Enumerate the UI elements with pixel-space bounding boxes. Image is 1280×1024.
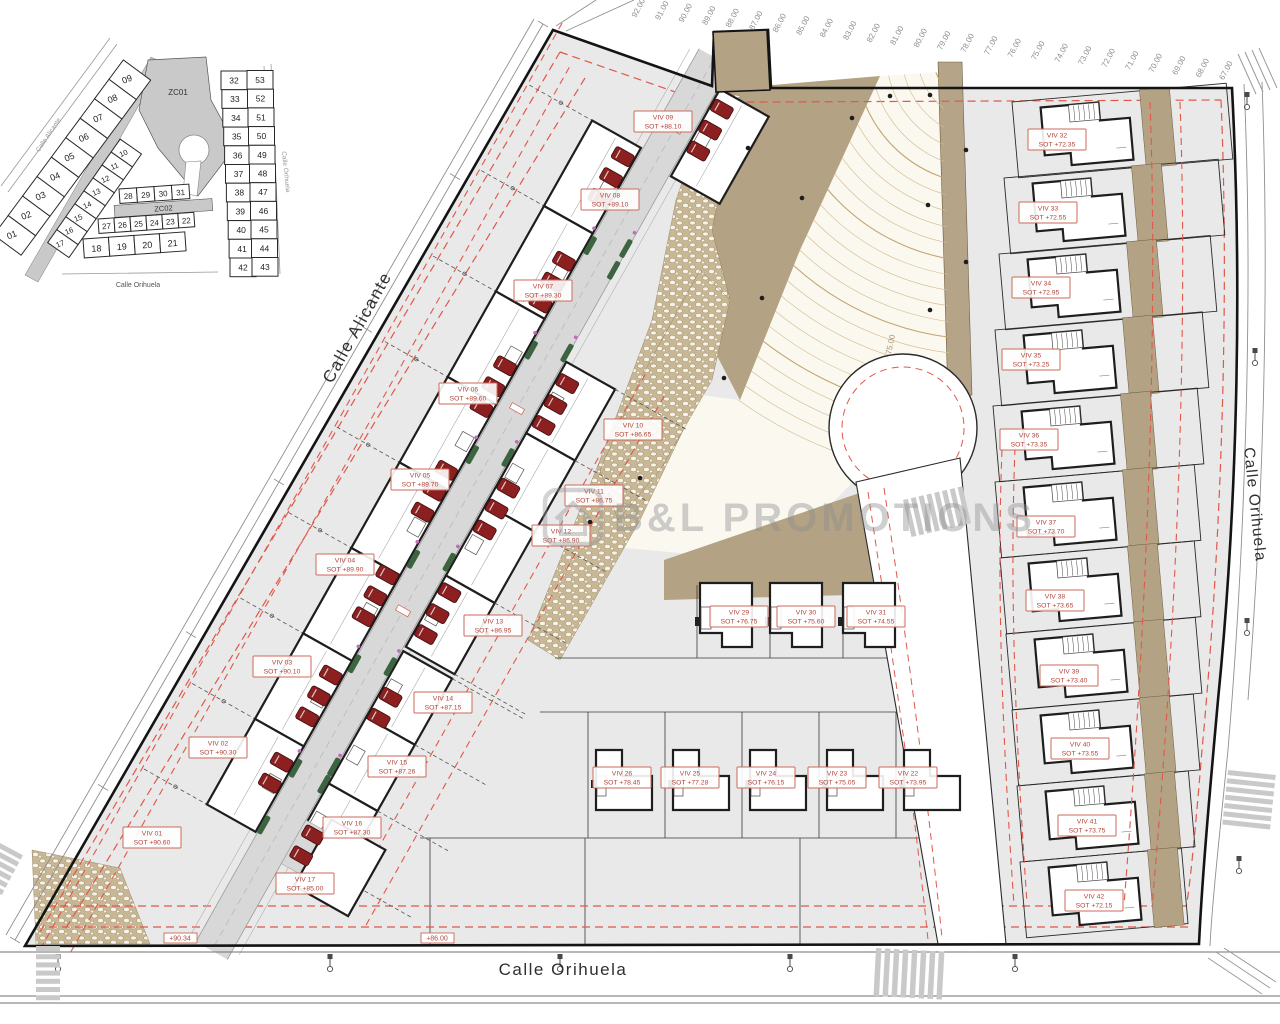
minimap-street-label: Calle Orihuela <box>280 151 291 193</box>
viv-label-name: VIV 42 <box>1084 894 1105 901</box>
crosswalk <box>36 946 60 951</box>
minimap-plot-number: 23 <box>166 217 176 227</box>
viv-label-sot: SOT +72.35 <box>1039 142 1076 149</box>
street-lamp-icon <box>1013 954 1018 959</box>
minimap-plot-number: 44 <box>260 243 270 253</box>
tree-icon <box>964 148 969 153</box>
viv-label-sot: SOT +72.55 <box>1030 215 1067 222</box>
tree-icon <box>800 196 805 201</box>
viv-label-name: VIV 07 <box>533 284 554 291</box>
minimap-plot-number: 18 <box>91 243 102 254</box>
viv-label: VIV 05SOT +89.70 <box>391 469 449 490</box>
minimap-plot-number: 36 <box>233 150 243 160</box>
rear-yard-tan <box>1133 619 1170 699</box>
site-plan-canvas: 92.0091.0090.0089.0088.0087.0086.0085.00… <box>0 0 1280 1024</box>
crosswalk-stripe <box>1223 811 1271 821</box>
contour-elevation-label: 81.00 <box>888 24 906 46</box>
tree-icon <box>888 94 893 99</box>
viv-label-sot: SOT +72.95 <box>1023 290 1060 297</box>
minimap-street-label: Calle Orihuela <box>116 282 160 289</box>
minimap-plot-number: 27 <box>102 222 112 232</box>
corner-hatch-bottomright <box>1208 948 1276 994</box>
contour-elevation-label: 83.00 <box>841 19 859 41</box>
north-access <box>713 30 770 92</box>
viv-label: VIV 14SOT +87.15 <box>414 692 472 713</box>
minimap-plot-number: 37 <box>234 169 244 179</box>
minimap-plot-number: 41 <box>237 244 247 254</box>
street-lamp-icon <box>788 954 793 959</box>
viv-label-sot: SOT +89.60 <box>450 396 487 403</box>
viv-label-name: VIV 09 <box>653 115 674 122</box>
viv-label-sot: SOT +89.30 <box>525 293 562 300</box>
street-lamp-icon <box>787 966 792 971</box>
viv-label-sot: SOT +86.75 <box>576 498 613 505</box>
viv-label-name: VIV 29 <box>729 610 750 617</box>
rear-yard-tan <box>1127 543 1164 623</box>
crosswalk-stripe <box>909 950 917 998</box>
viv-label: VIV 24SOT +76.15 <box>737 767 795 788</box>
viv-label: VIV 01SOT +90.60 <box>123 827 181 848</box>
viv-label-sot: SOT +87.30 <box>334 830 371 837</box>
viv-label: VIV 02SOT +90.30 <box>189 737 247 758</box>
minimap-plot-number: 31 <box>176 188 186 198</box>
viv-label-name: VIV 13 <box>483 619 504 626</box>
viv-label-name: VIV 30 <box>796 610 817 617</box>
crosswalk <box>873 948 944 1000</box>
viv-label-sot: SOT +73.65 <box>1037 603 1074 610</box>
minimap-plot-number: 42 <box>238 263 248 273</box>
entrance-step <box>838 617 843 626</box>
street-lamp-icon <box>1245 618 1250 623</box>
minimap-mid-row2: 272625242322 <box>98 212 195 233</box>
viv-label: VIV 15SOT +87.26 <box>368 756 426 777</box>
site-plan-drawing: 92.0091.0090.0089.0088.0087.0086.0085.00… <box>0 0 1280 1024</box>
viv-label: VIV 42SOT +72.15 <box>1065 890 1123 911</box>
minimap-plot-number: 22 <box>182 216 192 226</box>
rear-yard-tan <box>1131 163 1168 243</box>
viv-label-sot: SOT +75.05 <box>819 780 856 787</box>
viv-label: VIV 31SOT +74.55 <box>847 606 905 627</box>
tree-icon <box>928 93 933 98</box>
contour-elevation-label: 92.00 <box>630 0 648 19</box>
minimap-plot-number: 49 <box>257 150 267 160</box>
viv-label-name: VIV 10 <box>623 423 644 430</box>
viv-label-name: VIV 40 <box>1070 742 1091 749</box>
crosswalk-stripe <box>1227 770 1275 780</box>
viv-label-name: VIV 01 <box>142 831 163 838</box>
viv-label-sot: SOT +73.55 <box>1062 751 1099 758</box>
viv-label: VIV 10SOT +86.65 <box>604 419 662 440</box>
minimap-plot-number: 46 <box>259 206 269 216</box>
viv-label: VIV 16SOT +87.30 <box>323 817 381 838</box>
viv-label-name: VIV 37 <box>1036 520 1057 527</box>
minimap-plot-number: 19 <box>116 241 127 252</box>
viv-label-name: VIV 33 <box>1038 206 1059 213</box>
minimap-plot-number: 34 <box>231 113 241 123</box>
road-elevation-text: +86.00 <box>426 936 448 943</box>
minimap-plot-number: 28 <box>123 192 133 202</box>
viv-label: VIV 17SOT +85.00 <box>276 873 334 894</box>
minimap-plot-number: 45 <box>259 225 269 235</box>
road-tick <box>10 937 20 943</box>
minimap-plot-number: 38 <box>235 188 245 198</box>
viv-label-name: VIV 35 <box>1021 353 1042 360</box>
contour-elevation-label: 75.00 <box>1029 39 1047 61</box>
contour-elevation-label: 84.00 <box>818 17 836 39</box>
viv-label: VIV 22SOT +73.95 <box>879 767 937 788</box>
rear-yard-tan <box>1122 467 1159 547</box>
viv-label: VIV 38SOT +73.65 <box>1026 590 1084 611</box>
viv-label: VIV 04SOT +89.90 <box>316 554 374 575</box>
crosswalk-stripe <box>1227 778 1275 788</box>
minimap-plot-number: 50 <box>257 131 267 141</box>
viv-label-sot: SOT +72.15 <box>1076 903 1113 910</box>
crosswalk <box>36 962 60 967</box>
minimap-plot-number: 48 <box>258 169 268 179</box>
viv-label-name: VIV 17 <box>295 877 316 884</box>
viv-label-name: VIV 14 <box>433 696 454 703</box>
crosswalk-stripe <box>900 949 908 997</box>
crosswalk <box>0 843 23 895</box>
contour-elevation-label: 90.00 <box>677 2 695 24</box>
viv-label: VIV 41SOT +73.75 <box>1058 815 1116 836</box>
street-label-orihuela-right: Calle Orihuela <box>1240 446 1269 562</box>
minimap-plot-number: 53 <box>255 75 265 85</box>
viv-label-sot: SOT +89.90 <box>327 567 364 574</box>
viv-label: VIV 03SOT +90.10 <box>253 656 311 677</box>
road-tick <box>98 784 108 790</box>
viv-label-sot: SOT +89.70 <box>402 482 439 489</box>
street-label-orihuela-bottom: Calle Orihuela <box>499 960 628 979</box>
minimap-plot-number: 26 <box>118 220 128 230</box>
contour-elevation-label: 71.00 <box>1123 49 1141 71</box>
contour-elevation-label: 91.00 <box>653 0 671 21</box>
street-lamp-icon <box>327 966 332 971</box>
minimap-plot-number: 35 <box>232 132 242 142</box>
contour-elevation-label: 88.00 <box>724 7 742 29</box>
viv-label: VIV 29SOT +76.75 <box>710 606 768 627</box>
crosswalk-stripe <box>873 948 881 996</box>
viv-label: VIV 06SOT +89.60 <box>439 383 497 404</box>
viv-label-name: VIV 31 <box>866 610 887 617</box>
viv-label-sot: SOT +73.35 <box>1011 442 1048 449</box>
street-lamp-icon <box>1252 360 1257 365</box>
street-lamp-icon <box>1253 348 1258 353</box>
minimap-plot-number: 47 <box>258 187 268 197</box>
viv-label-sot: SOT +76.75 <box>721 619 758 626</box>
viv-label-name: VIV 36 <box>1019 433 1040 440</box>
viv-label: VIV 36SOT +73.35 <box>1000 429 1058 450</box>
minimap-plot-number: 51 <box>256 112 266 122</box>
viv-label: VIV 40SOT +73.55 <box>1051 738 1109 759</box>
contour-elevation-label: 85.00 <box>794 14 812 36</box>
viv-label: VIV 25SOT +77.28 <box>661 767 719 788</box>
minimap-plot-number: 32 <box>229 76 239 86</box>
minimap-plot-number: 40 <box>236 225 246 235</box>
viv-label-sot: SOT +89.10 <box>592 202 629 209</box>
key-plan-minimap: ZC01090807060504030201101112131415161728… <box>0 38 291 289</box>
tree-icon <box>928 308 933 313</box>
watermark: B&L PROMOTIONS <box>545 490 1036 544</box>
road-elevation-text: +90.34 <box>169 936 191 943</box>
tree-icon <box>760 296 765 301</box>
viv-label-sot: SOT +90.30 <box>200 750 237 757</box>
street-lamp-icon <box>1236 868 1241 873</box>
road-elevation-label: +86.00 <box>421 933 454 943</box>
viv-label-sot: SOT +88.10 <box>645 124 682 131</box>
tree-icon <box>722 376 727 381</box>
minimap-plot-number: 25 <box>134 219 144 229</box>
contour-elevation-label: 79.00 <box>935 29 953 51</box>
crosswalk <box>1222 770 1275 830</box>
viv-label-name: VIV 03 <box>272 660 293 667</box>
contour-elevation-label: 86.00 <box>771 12 789 34</box>
viv-label: VIV 13SOT +86.95 <box>464 615 522 636</box>
minimap-plot-number: 43 <box>260 262 270 272</box>
crosswalk-stripe <box>936 951 944 999</box>
viv-label-name: VIV 24 <box>756 771 777 778</box>
tree-icon <box>746 146 751 151</box>
viv-label-sot: SOT +77.28 <box>672 780 709 787</box>
crosswalk-stripe <box>1226 787 1274 797</box>
viv-label-sot: SOT +86.65 <box>615 432 652 439</box>
crosswalk-stripe <box>1224 803 1272 813</box>
viv-label-sot: SOT +90.10 <box>264 669 301 676</box>
crosswalk <box>36 987 60 992</box>
viv-label-name: VIV 32 <box>1047 133 1068 140</box>
tree-icon <box>638 476 643 481</box>
road-elevation-label: +90.34 <box>164 933 197 943</box>
contour-elevation-label: 78.00 <box>959 32 977 54</box>
watermark-text: B&L PROMOTIONS <box>614 496 1036 540</box>
minimap-plot-number: 33 <box>230 94 240 104</box>
viv-label-sot: SOT +90.60 <box>134 840 171 847</box>
viv-label-name: VIV 41 <box>1077 819 1098 826</box>
street-lamp-icon <box>328 954 333 959</box>
contour-elevation-label: 67.00 <box>1217 59 1235 81</box>
tree-icon <box>850 116 855 121</box>
street-lamp-icon <box>1012 966 1017 971</box>
viv-label-name: VIV 08 <box>600 193 621 200</box>
entrance-step <box>695 617 700 626</box>
viv-label-name: VIV 34 <box>1031 281 1052 288</box>
crosswalk-stripe <box>1225 795 1273 805</box>
viv-label: VIV 07SOT +89.30 <box>514 280 572 301</box>
minimap-plot-number: 20 <box>142 240 153 251</box>
viv-label-sot: SOT +87.26 <box>379 769 416 776</box>
contour-elevation-label: 87.00 <box>747 9 765 31</box>
road-tick <box>538 21 548 27</box>
rear-yard-tan <box>1147 847 1184 927</box>
rear-yard-tan <box>1126 239 1163 319</box>
contour-elevation-label: 69.00 <box>1170 54 1188 76</box>
minimap-plot-number: 24 <box>150 218 160 228</box>
viv-label-sot: SOT +76.15 <box>748 780 785 787</box>
viv-label-name: VIV 02 <box>208 741 229 748</box>
viv-label-sot: SOT +85.00 <box>287 886 324 893</box>
contour-elevation-label: 74.00 <box>1053 42 1071 64</box>
minimap-plot-number: 52 <box>256 94 266 104</box>
viv-label-name: VIV 04 <box>335 558 356 565</box>
crosswalk-stripe <box>918 950 926 998</box>
street-lamp-icon <box>1245 92 1250 97</box>
rear-yard-tan <box>1139 695 1176 775</box>
contour-elevation-label: 80.00 <box>912 27 930 49</box>
viv-label-sot: SOT +86.95 <box>475 628 512 635</box>
road-tick <box>450 174 460 180</box>
viv-label: VIV 30SOT +75.60 <box>777 606 835 627</box>
tree-icon <box>588 520 593 525</box>
viv-label-name: VIV 06 <box>458 387 479 394</box>
contour-elevation-label: 72.00 <box>1100 47 1118 69</box>
viv-label-name: VIV 39 <box>1059 669 1080 676</box>
rear-yard-tan <box>1139 87 1176 167</box>
viv-label: VIV 33SOT +72.55 <box>1019 202 1077 223</box>
contour-elevation-label: 70.00 <box>1147 52 1165 74</box>
viv-label: VIV 23SOT +75.05 <box>808 767 866 788</box>
road-tick <box>186 632 196 638</box>
crosswalk-stripe <box>927 951 935 999</box>
crosswalk-stripe <box>1222 820 1270 830</box>
viv-label-name: VIV 26 <box>612 771 633 778</box>
contour-elevation-label: 77.00 <box>982 34 1000 56</box>
crosswalk-stripe <box>882 948 890 996</box>
minimap-plot-number: 21 <box>167 238 178 249</box>
viv-label-name: VIV 05 <box>410 473 431 480</box>
crosswalk <box>36 995 60 1000</box>
viv-label-name: VIV 23 <box>827 771 848 778</box>
rear-yard-tan <box>1122 315 1159 395</box>
viv-label-sot: SOT +73.40 <box>1051 678 1088 685</box>
viv-label: VIV 34SOT +72.95 <box>1012 277 1070 298</box>
viv-label: VIV 39SOT +73.40 <box>1040 665 1098 686</box>
viv-label-sot: SOT +74.55 <box>858 619 895 626</box>
contour-elevation-label: 82.00 <box>865 22 883 44</box>
minimap-plot-number: 30 <box>158 189 168 199</box>
rear-yard-tan <box>1120 391 1157 471</box>
crosswalk-stripe <box>891 949 899 997</box>
contour-elevation-label: 68.00 <box>1194 57 1212 79</box>
viv-label-sot: SOT +87.15 <box>425 705 462 712</box>
road-tick <box>274 479 284 485</box>
viv-label: VIV 08SOT +89.10 <box>581 189 639 210</box>
crosswalk <box>36 971 60 976</box>
viv-label-name: VIV 15 <box>387 760 408 767</box>
viv-label-sot: SOT +73.25 <box>1013 362 1050 369</box>
viv-label-name: VIV 16 <box>342 821 363 828</box>
viv-label-sot: SOT +75.60 <box>788 619 825 626</box>
street-lamp-icon <box>1244 630 1249 635</box>
viv-label-sot: SOT +78.45 <box>604 780 641 787</box>
viv-label-name: VIV 38 <box>1045 594 1066 601</box>
viv-label: VIV 32SOT +72.35 <box>1028 129 1086 150</box>
viv-label: VIV 35SOT +73.25 <box>1002 349 1060 370</box>
viv-label-name: VIV 22 <box>898 771 919 778</box>
minimap-cul-de-sac <box>179 135 209 165</box>
minimap-mid-row3: 18192021 <box>83 232 186 258</box>
minimap-plot-number: 39 <box>236 206 246 216</box>
contour-elevation-label: 73.00 <box>1076 44 1094 66</box>
calle-orihuela-bottom-lines <box>0 952 1280 1003</box>
crosswalk <box>36 954 60 959</box>
crosswalk <box>36 979 60 984</box>
street-lamp-icon <box>558 954 563 959</box>
viv-label-sot: SOT +73.95 <box>890 780 927 787</box>
viv-label-name: VIV 25 <box>680 771 701 778</box>
viv-label: VIV 09SOT +88.10 <box>634 111 692 132</box>
minimap-zone-label: ZC02 <box>154 203 173 213</box>
tree-icon <box>964 260 969 265</box>
street-lamp-icon <box>1237 856 1242 861</box>
minimap-plot-number: 29 <box>141 190 151 200</box>
viv-label-sot: SOT +73.75 <box>1069 828 1106 835</box>
contour-elevation-label: 76.00 <box>1006 37 1024 59</box>
tree-icon <box>926 203 931 208</box>
contour-elevation-label: 89.00 <box>700 4 718 26</box>
minimap-zone-label: ZC01 <box>168 88 188 97</box>
viv-label: VIV 26SOT +78.45 <box>593 767 651 788</box>
rear-yard-tan <box>1144 771 1181 851</box>
